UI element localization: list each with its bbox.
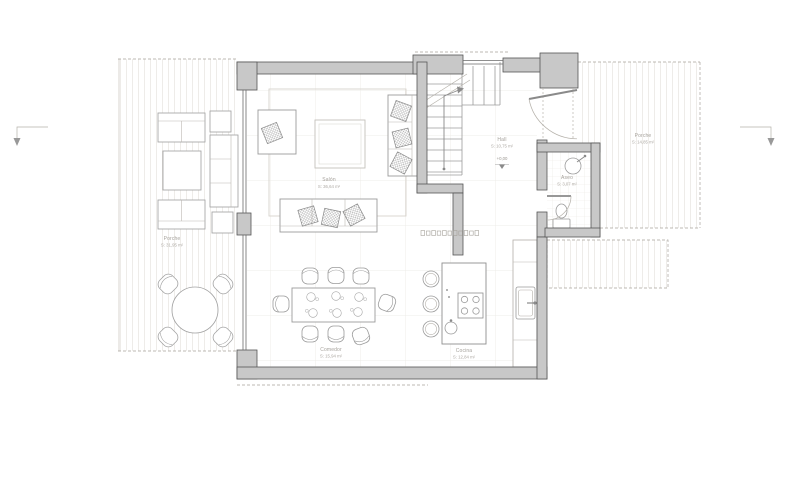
dining-chair (328, 326, 344, 342)
wall-segment (545, 228, 600, 237)
wall-segment (417, 184, 463, 193)
outdoor-side-table (210, 111, 231, 132)
wall-segment (453, 193, 463, 255)
deck-planks (547, 240, 668, 288)
dining-chair (273, 296, 289, 312)
floor-plan-drawing: Salón S: 36,64 m² Hall S: 10,75 m² +0,00… (0, 0, 788, 477)
pillow (321, 208, 340, 227)
wall-segment (417, 62, 427, 193)
label-comedor-name: Comedor (320, 347, 342, 353)
label-comedor-area: S: 15,94 m² (320, 354, 343, 359)
wall-segment (237, 213, 251, 235)
side-deck (547, 240, 668, 288)
bar-stool (423, 321, 439, 337)
dining-chair (302, 326, 318, 342)
label-hall-level: +0,00 (497, 156, 508, 161)
label-porche-right-area: S: 14,85 m² (632, 140, 655, 145)
section-marker-left (14, 127, 49, 146)
wall-segment (591, 143, 600, 237)
wall-segment (237, 62, 257, 90)
wall-segment (540, 53, 578, 88)
outdoor-side-table (212, 212, 233, 233)
label-salon-name: Salón (322, 177, 336, 183)
wall-segment (237, 367, 547, 379)
dining-chair (328, 268, 344, 284)
island-sink (445, 322, 457, 334)
label-aseo-name: Aseo (561, 175, 573, 181)
wall-segment (237, 62, 420, 74)
coffee-table (315, 120, 365, 168)
wall-segment (537, 237, 547, 379)
bar-stool (423, 296, 439, 312)
label-porche-right-name: Porche (635, 133, 652, 139)
outdoor-coffee-table (163, 151, 201, 190)
dining-chair (353, 268, 369, 284)
outdoor-round-table (172, 287, 218, 333)
label-cocina-name: Cocina (456, 348, 473, 354)
label-salon-area: S: 36,64 m² (318, 184, 341, 189)
outdoor-sofa-right (210, 135, 238, 207)
label-porche-left-name: Porche (164, 236, 181, 242)
label-cocina-area: S: 12,84 m² (453, 355, 476, 360)
label-porche-left-area: S: 31,95 m² (161, 243, 184, 248)
label-hall-area: S: 10,75 m² (491, 144, 514, 149)
wall-segment (537, 143, 600, 152)
label-aseo-area: S: 3,07 m² (557, 182, 577, 187)
outdoor-lounge-set (158, 111, 238, 233)
cooktop (458, 293, 483, 318)
pillow (392, 128, 412, 148)
bar-stool (423, 271, 439, 287)
wall-segment (503, 58, 545, 72)
dining-chair (302, 268, 318, 284)
section-marker-right (740, 127, 775, 146)
floorplan-canvas: Salón S: 36,64 m² Hall S: 10,75 m² +0,00… (0, 0, 788, 477)
label-hall-name: Hall (497, 137, 506, 143)
